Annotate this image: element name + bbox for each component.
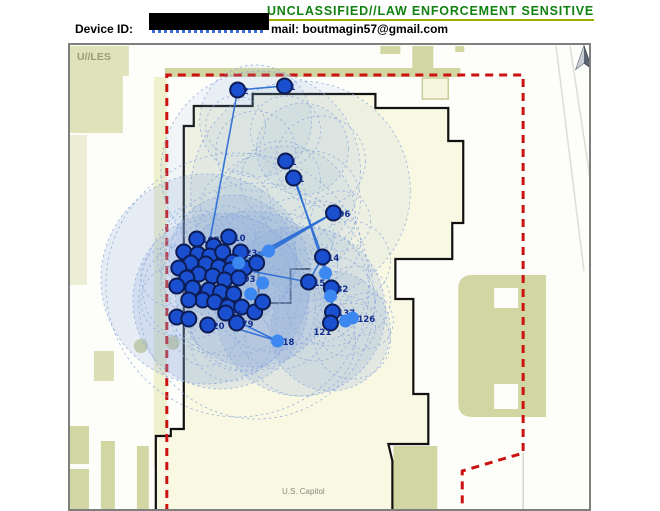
point-label: 1 xyxy=(290,83,296,93)
point-label: 126 xyxy=(357,315,375,325)
email-text: mail: boutmagin57@gmail.com xyxy=(271,22,448,36)
location-point[interactable] xyxy=(255,295,270,310)
north-arrow-icon xyxy=(576,46,589,69)
point-label: 18 xyxy=(283,338,295,348)
point-label: 79 xyxy=(242,320,254,330)
accuracy-circles-layer xyxy=(101,65,410,419)
point-label: 1 xyxy=(291,158,297,168)
outbuilding xyxy=(422,78,448,99)
capitol-map: 1081062239312313207921119614153213712112… xyxy=(70,45,589,509)
point-label: 96 xyxy=(338,210,350,220)
point-label: 10 xyxy=(234,234,246,244)
redaction-bar xyxy=(149,13,269,30)
point-label: 121 xyxy=(314,328,332,338)
location-point[interactable] xyxy=(249,256,264,271)
location-point[interactable] xyxy=(324,290,337,303)
point-label: 1 xyxy=(299,175,305,185)
device-id-label: Device ID: xyxy=(75,22,133,36)
point-label: 20 xyxy=(213,322,225,332)
location-point[interactable] xyxy=(256,277,269,290)
point-label: 93 xyxy=(244,275,256,285)
location-point[interactable] xyxy=(232,257,245,270)
location-point[interactable] xyxy=(262,245,275,258)
road-lines xyxy=(556,46,589,271)
map-panel[interactable]: 1081062239312313207921119614153213712112… xyxy=(68,43,591,511)
map-watermark: U//LES xyxy=(77,51,111,63)
point-label: 14 xyxy=(328,254,340,264)
location-point[interactable] xyxy=(319,267,332,280)
capitol-place-label: U.S. Capitol xyxy=(282,487,325,496)
location-point[interactable] xyxy=(181,293,196,308)
location-point[interactable] xyxy=(169,279,184,294)
redacted-text-remnant xyxy=(152,30,266,33)
classification-banner: UNCLASSIFIED//LAW ENFORCEMENT SENSITIVE xyxy=(267,4,594,21)
point-label: 2 xyxy=(243,87,249,97)
location-point[interactable] xyxy=(181,312,196,327)
point-label: 32 xyxy=(336,285,348,295)
location-point[interactable] xyxy=(244,288,257,301)
